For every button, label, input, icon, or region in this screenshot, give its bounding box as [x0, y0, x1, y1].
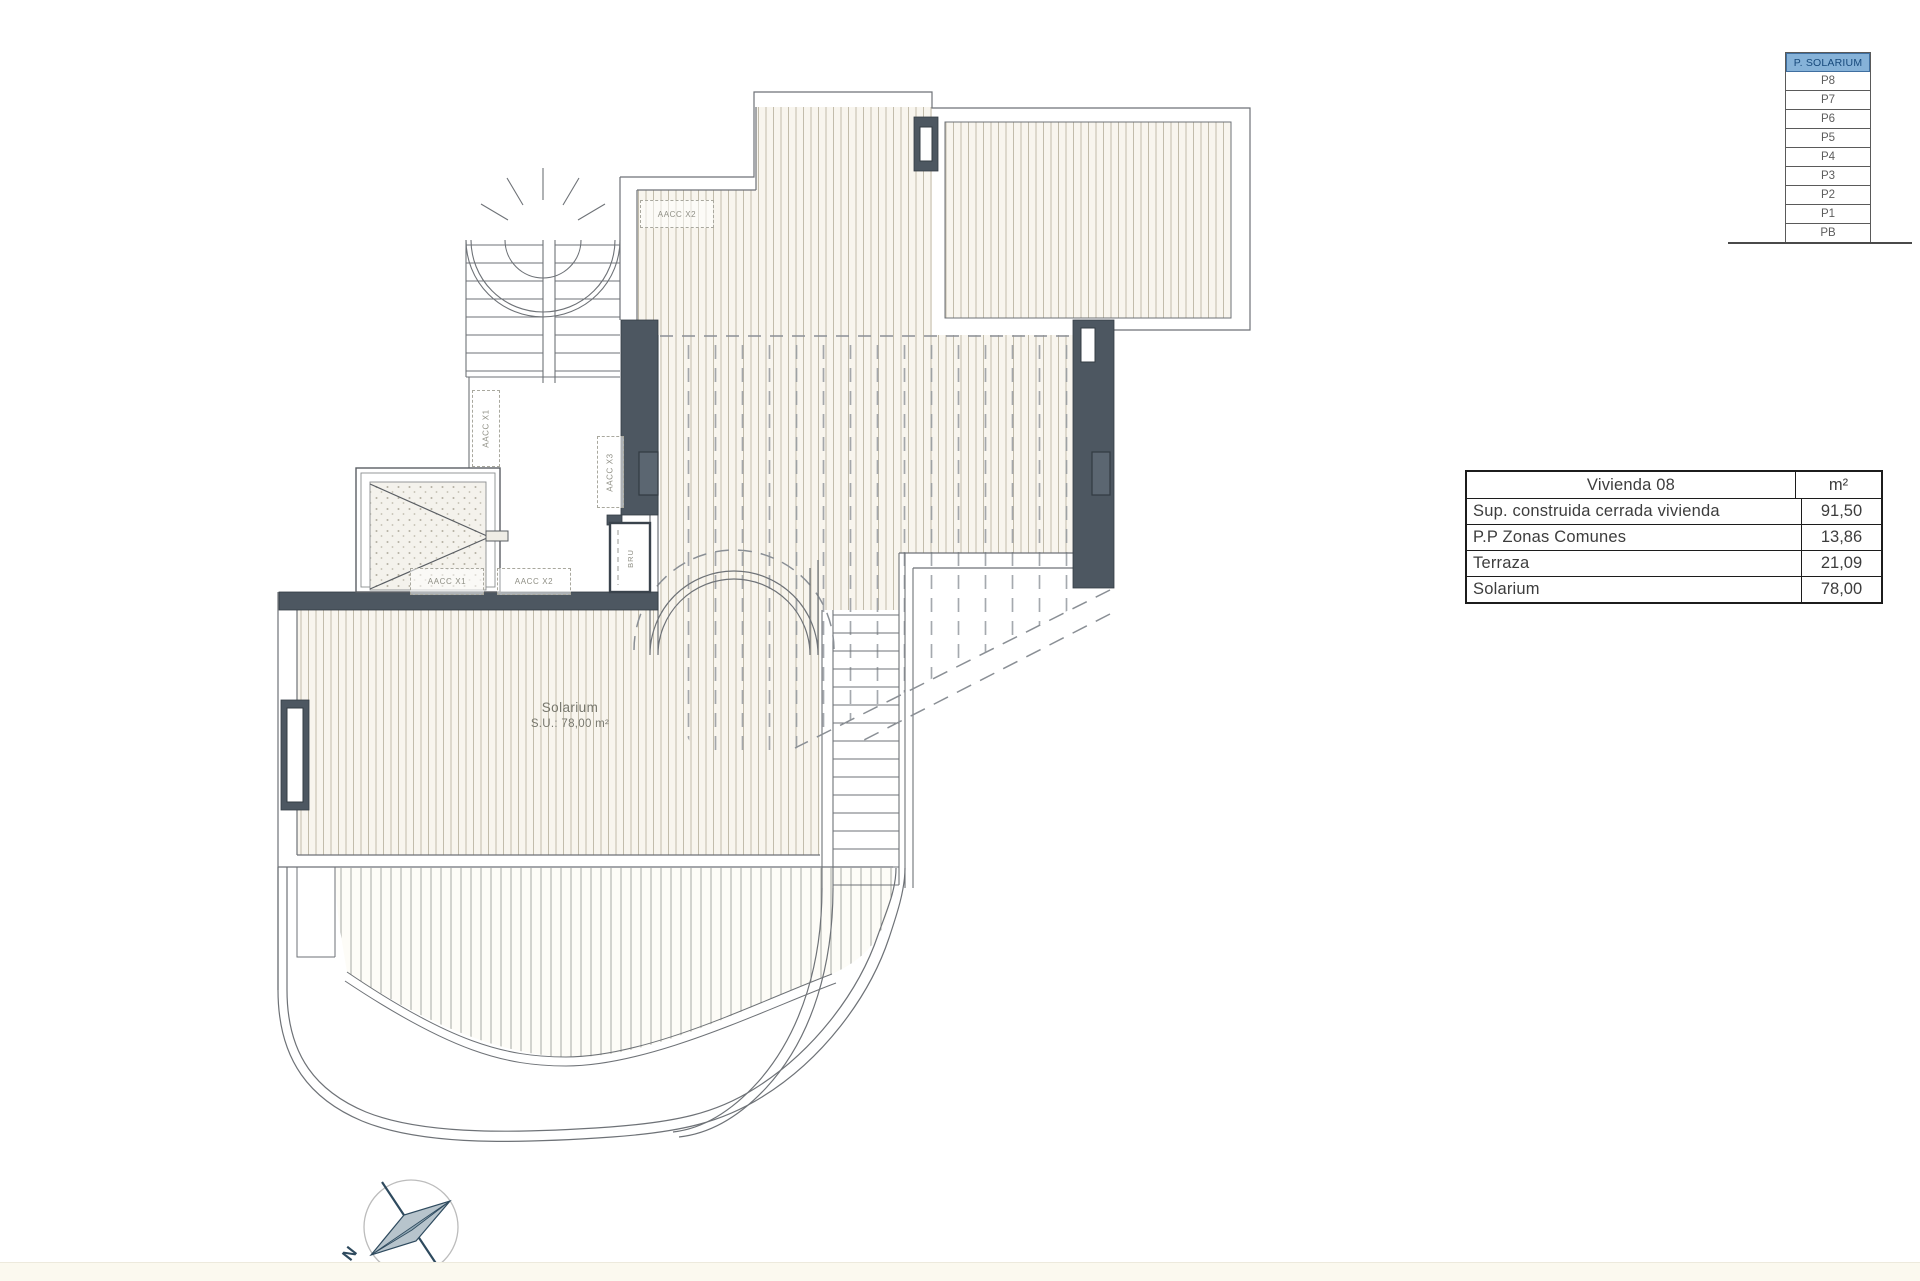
bru-label: BRU: [609, 524, 651, 592]
areas-unit: m²: [1796, 472, 1881, 498]
table-row: Terraza 21,09: [1467, 550, 1881, 576]
floorplan-drawing: [0, 0, 1920, 1280]
levels-panel: P. SOLARIUM P8 P7 P6 P5 P4 P3 P2 P1 PB: [1785, 52, 1871, 243]
aacc-x1-label: AACC X1: [410, 568, 484, 595]
area-value: 21,09: [1802, 551, 1881, 576]
solarium-room-label: Solarium S.U.: 78,00 m²: [498, 700, 642, 731]
area-label: Solarium: [1467, 577, 1802, 602]
window-solarium-left: [281, 700, 309, 810]
area-value: 13,86: [1802, 525, 1881, 550]
aacc-x3-vertical-label: AACC X3: [597, 436, 624, 508]
level-item[interactable]: P5: [1786, 129, 1870, 148]
window-top-glass: [920, 127, 932, 161]
compass-north-icon: [364, 1180, 458, 1274]
area-label: Sup. construida cerrada vivienda: [1467, 499, 1802, 524]
door-niche-left: [639, 452, 658, 495]
areas-header-row: Vivienda 08 m²: [1467, 472, 1881, 498]
page-bottom-strip: [0, 1262, 1920, 1281]
level-item[interactable]: P1: [1786, 205, 1870, 224]
areas-title: Vivienda 08: [1467, 472, 1796, 498]
level-item[interactable]: P6: [1786, 110, 1870, 129]
level-item[interactable]: P3: [1786, 167, 1870, 186]
table-row: Sup. construida cerrada vivienda 91,50: [1467, 498, 1881, 524]
area-value: 78,00: [1802, 577, 1881, 602]
level-item[interactable]: P7: [1786, 91, 1870, 110]
aacc-x1-vertical-label: AACC X1: [472, 390, 500, 467]
areas-table: Vivienda 08 m² Sup. construida cerrada v…: [1465, 470, 1883, 604]
table-row: P.P Zonas Comunes 13,86: [1467, 524, 1881, 550]
area-value: 91,50: [1802, 499, 1881, 524]
level-current[interactable]: P. SOLARIUM: [1786, 53, 1870, 72]
table-row: Solarium 78,00: [1467, 576, 1881, 602]
room-name: Solarium: [498, 700, 642, 717]
level-item[interactable]: P2: [1786, 186, 1870, 205]
aacc-x2-roof-label: AACC X2: [640, 200, 714, 228]
pergola-slats-overlay: [663, 338, 1071, 757]
area-label: Terraza: [1467, 551, 1802, 576]
levels-ground-line: [1728, 242, 1912, 244]
aacc-x2-label: AACC X2: [497, 568, 571, 595]
room-area: S.U.: 78,00 m²: [498, 717, 642, 731]
lower-terrace-hatch: [335, 868, 893, 1057]
door-niche-right: [1092, 452, 1110, 495]
window-right-wall-glass: [1081, 328, 1095, 362]
level-item[interactable]: P4: [1786, 148, 1870, 167]
level-item[interactable]: P8: [1786, 72, 1870, 91]
level-item[interactable]: PB: [1786, 224, 1870, 243]
area-label: P.P Zonas Comunes: [1467, 525, 1802, 550]
